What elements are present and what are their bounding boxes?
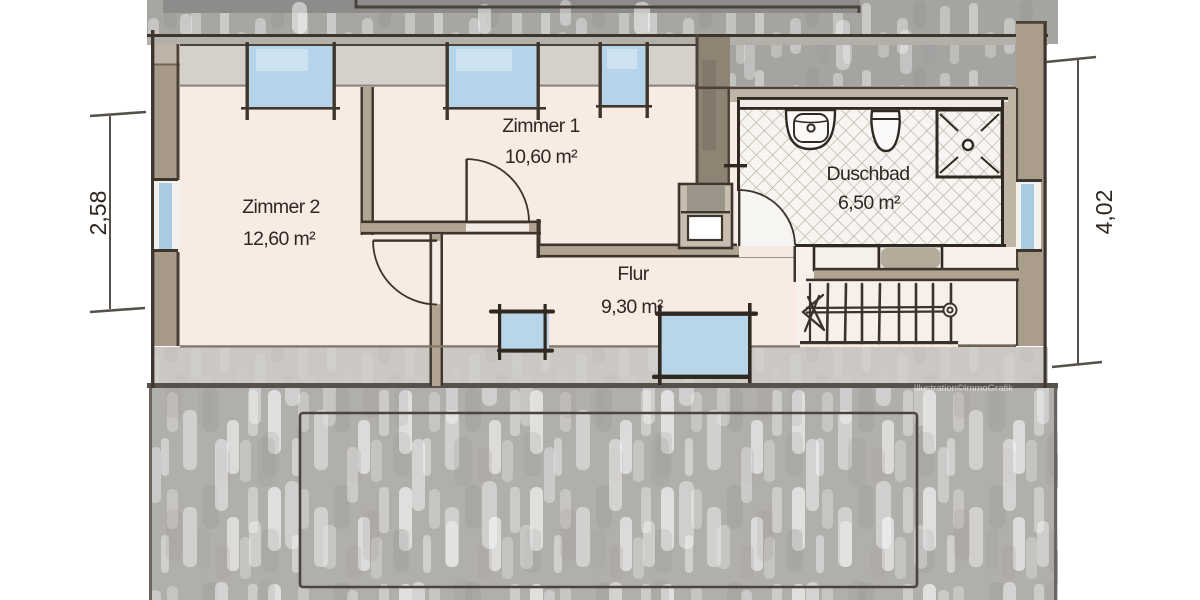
svg-text:Illustration©ImmoGrafik: Illustration©ImmoGrafik	[914, 383, 1014, 394]
svg-text:12,60 m²: 12,60 m²	[243, 228, 316, 250]
svg-text:Flur: Flur	[617, 263, 649, 285]
svg-text:10,60 m²: 10,60 m²	[505, 146, 578, 168]
svg-text:Duschbad: Duschbad	[826, 163, 909, 185]
svg-text:Zimmer 1: Zimmer 1	[502, 115, 580, 137]
svg-text:9,30 m²: 9,30 m²	[601, 296, 664, 318]
svg-text:4,02: 4,02	[1091, 190, 1117, 235]
svg-text:Zimmer 2: Zimmer 2	[242, 196, 320, 218]
svg-text:2,58: 2,58	[85, 191, 111, 236]
svg-text:6,50 m²: 6,50 m²	[838, 192, 901, 214]
